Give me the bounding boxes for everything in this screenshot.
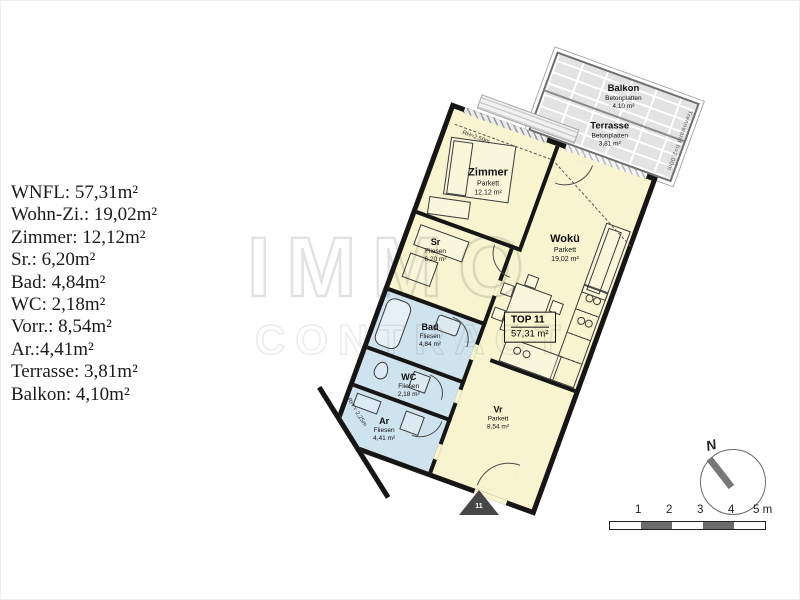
scale-tick-3: 3	[697, 504, 703, 516]
room-vr: Vr Parkett 8,54 m²	[473, 404, 523, 432]
entrance-unit-number: 11	[457, 503, 501, 510]
scale-bar-segments	[609, 521, 766, 530]
area-line-terrasse: Terrasse: 3,81m²	[11, 361, 157, 383]
area-line-vorr: Vorr.: 8,54m²	[11, 316, 157, 338]
scale-bar: 1 2 3 4 5 m	[609, 504, 779, 532]
unit-label-box: TOP 11 57,31 m²	[504, 312, 555, 343]
room-wc: WC Fliesen 2,18 m²	[387, 372, 431, 400]
area-line-zimmer: Zimmer: 12,12m²	[11, 227, 157, 249]
floorplan-page: WNFL: 57,31m² Wohn-Zi.: 19,02m² Zimmer: …	[0, 0, 800, 600]
room-zimmer: Zimmer Parkett 12,12 m²	[453, 167, 523, 198]
partition-note: Trennwand h=2,00m	[665, 109, 692, 171]
scale-tick-2: 2	[666, 504, 672, 516]
entrance-marker: 11	[457, 488, 501, 518]
room-balkon: Balkon Betonplatten 4,10 m²	[573, 83, 673, 111]
area-summary-list: WNFL: 57,31m² Wohn-Zi.: 19,02m² Zimmer: …	[11, 182, 157, 406]
apartment-outline: RH≈2,50m RH = 2,25m Zimmer Parkett 12,12…	[328, 102, 658, 516]
room-bad: Bad Fliesen 4,84 m²	[405, 322, 455, 350]
area-line-wohnzi: Wohn-Zi.: 19,02m²	[11, 204, 157, 226]
area-line-wc: WC: 2,18m²	[11, 294, 157, 316]
area-line-balkon: Balkon: 4,10m²	[11, 384, 157, 406]
room-terrasse: Terrasse Betonplatten 3,81 m²	[560, 120, 660, 148]
scale-tick-4: 4	[728, 504, 734, 516]
area-line-ar: Ar.:4,41m²	[11, 339, 157, 361]
unit-number: TOP 11	[511, 315, 548, 326]
area-line-bad: Bad: 4,84m²	[11, 272, 157, 294]
scale-tick-1: 1	[635, 504, 641, 516]
room-sr: Sr Fliesen 6,20 m²	[411, 237, 461, 265]
floorplan: Balkon Betonplatten 4,10 m² Terrasse Bet…	[328, 102, 658, 516]
door-arc	[555, 155, 593, 193]
area-line-sr: Sr.: 6,20m²	[11, 249, 157, 271]
scale-end-label: 5 m	[753, 504, 772, 516]
room-ar: Ar Fliesen 4,41 m²	[362, 416, 406, 444]
room-woku: Wokü Parkett 19,02 m²	[535, 233, 595, 264]
area-line-wnfl: WNFL: 57,31m²	[11, 182, 157, 204]
unit-area: 57,31 m²	[511, 327, 548, 340]
north-label: N	[704, 436, 718, 454]
